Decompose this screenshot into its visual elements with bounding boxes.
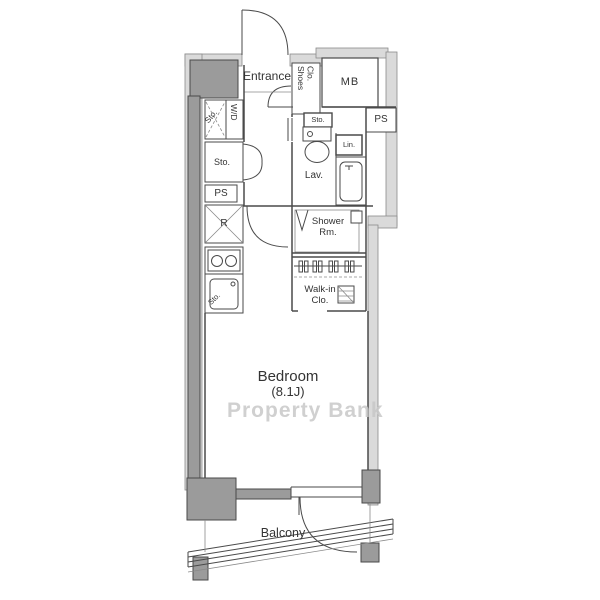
- storage-above-toilet-label: Sto.: [304, 113, 332, 127]
- pipe-space-top-label: PS: [366, 108, 396, 132]
- bedroom-label: Bedroom (8.1J): [218, 368, 358, 400]
- balcony-door-swing: [300, 497, 357, 552]
- washer-dryer-label: W/D: [228, 104, 238, 137]
- floor-plan: Entrance Shoes Clo. MB PS Sto. Lin. Lav.…: [0, 0, 600, 600]
- refrigerator-label: R: [205, 205, 243, 243]
- walk-in-closet-label: Walk-in Clo.: [292, 281, 348, 311]
- linen-label: Lin.: [336, 135, 362, 155]
- balcony-window: [291, 487, 362, 552]
- kitchen-door-swing: [247, 206, 288, 247]
- entrance-door-swing: [242, 10, 288, 55]
- balcony-label: Balcony: [233, 526, 333, 540]
- washbasin-icon: [336, 157, 366, 205]
- kitchen-sink-icon: [205, 274, 243, 313]
- storage-closet-label: Sto.: [205, 154, 239, 170]
- meter-box-label: MB: [322, 58, 378, 107]
- stove-burners-icon: [205, 247, 243, 274]
- shoes-closet-label: Shoes Clo.: [295, 66, 315, 112]
- lavatory-label: Lav.: [292, 168, 336, 184]
- entrance-label: Entrance: [243, 70, 291, 84]
- toilet-icon: [303, 127, 331, 163]
- shower-room-label: Shower Rm.: [296, 212, 360, 244]
- pipe-space-left-label: PS: [205, 185, 237, 202]
- watermark: Property Bank: [227, 399, 384, 423]
